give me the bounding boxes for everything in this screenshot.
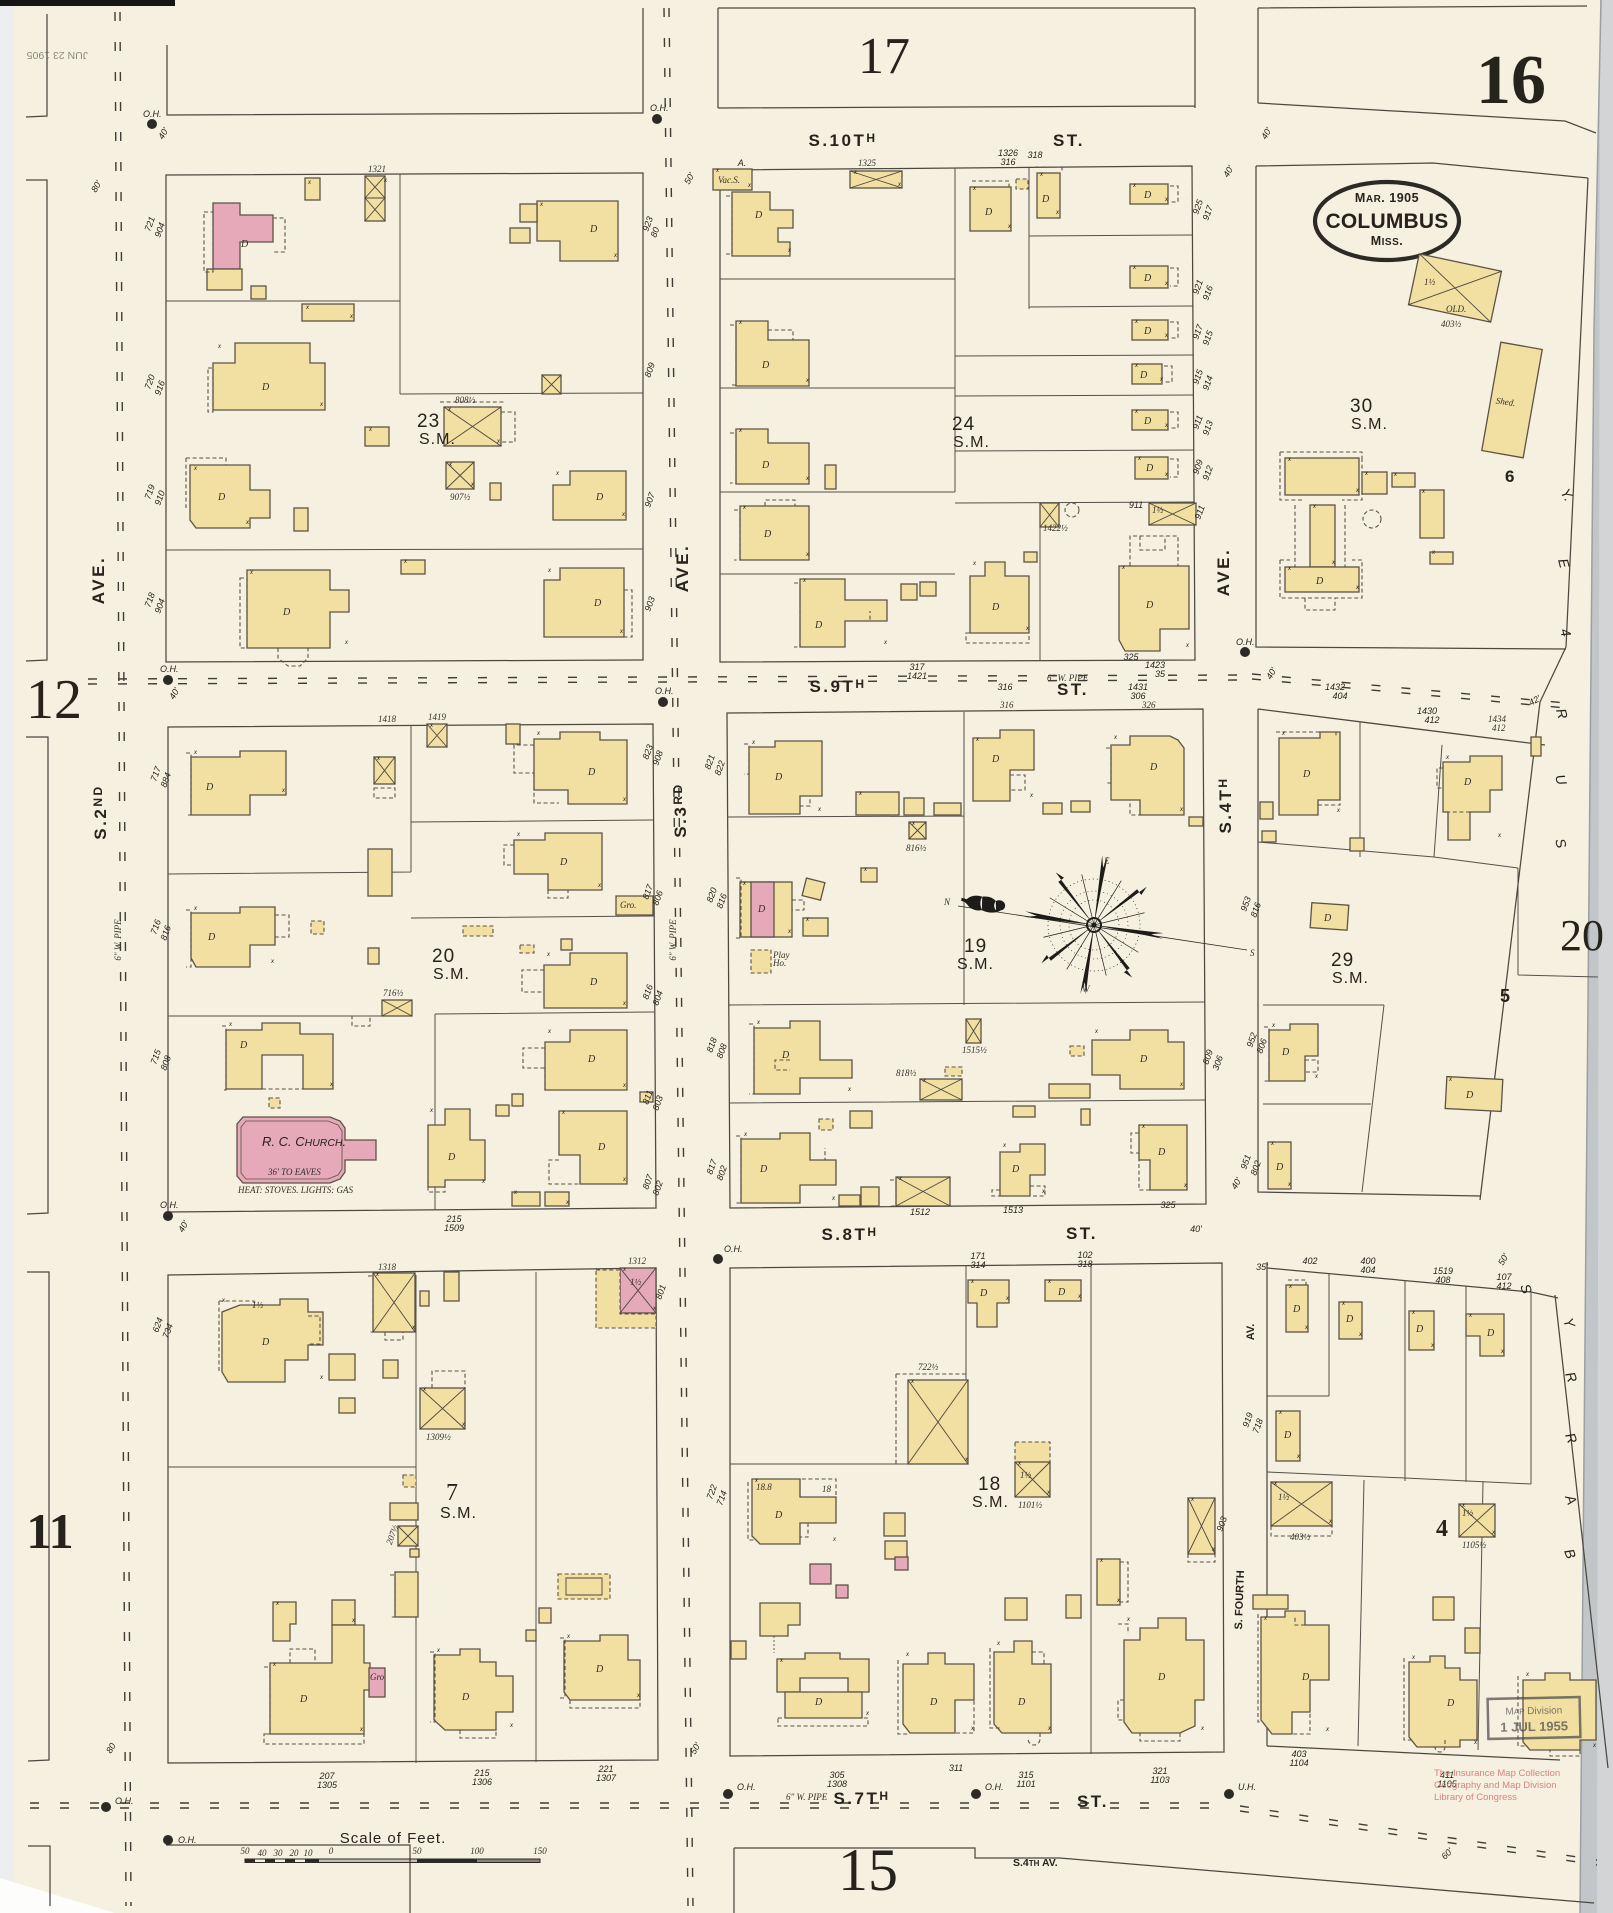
svg-text:D: D (774, 1510, 783, 1521)
svg-text:D: D (759, 1164, 768, 1175)
svg-text:O.H.: O.H. (178, 1835, 197, 1845)
svg-text:S.M.: S.M. (1351, 416, 1388, 433)
svg-text:D: D (1465, 1090, 1474, 1101)
svg-text:D: D (1011, 1164, 1020, 1175)
svg-text:D: D (814, 620, 823, 631)
svg-text:Scale of Feet.: Scale of Feet. (340, 1830, 447, 1847)
svg-text:907½: 907½ (450, 492, 471, 502)
svg-text:318: 318 (1077, 1259, 1092, 1269)
svg-text:1312: 1312 (628, 1256, 647, 1266)
svg-text:D: D (991, 602, 1000, 613)
svg-text:1515½: 1515½ (962, 1045, 987, 1055)
svg-text:1½: 1½ (1424, 277, 1436, 287)
svg-text:D: D (461, 1692, 470, 1703)
svg-text:403½: 403½ (1441, 319, 1462, 329)
svg-text:Library of Congress: Library of Congress (1434, 1792, 1517, 1803)
svg-text:D: D (991, 754, 1000, 765)
svg-text:911: 911 (1129, 500, 1143, 510)
svg-text:D: D (1143, 273, 1152, 284)
svg-text:ST.: ST. (1053, 131, 1085, 150)
svg-text:D: D (1057, 1287, 1066, 1298)
svg-text:1104: 1104 (1289, 1758, 1308, 1768)
svg-text:1306: 1306 (472, 1777, 492, 1787)
svg-text:15: 15 (838, 1837, 898, 1903)
svg-text:1325: 1325 (858, 158, 877, 168)
svg-text:Gro.: Gro. (620, 900, 636, 910)
svg-text:ST.: ST. (1066, 1224, 1098, 1243)
svg-text:20: 20 (432, 946, 455, 967)
svg-text:D: D (1486, 1328, 1495, 1339)
svg-text:18.8: 18.8 (756, 1482, 772, 1492)
svg-text:O.H.: O.H. (143, 109, 162, 119)
svg-text:6" W. PIPE: 6" W. PIPE (786, 1792, 828, 1802)
svg-text:325: 325 (1160, 1200, 1176, 1210)
svg-text:1512: 1512 (910, 1207, 930, 1217)
svg-text:20: 20 (290, 1848, 300, 1858)
svg-text:11: 11 (26, 1503, 73, 1559)
svg-text:D: D (1463, 777, 1472, 788)
svg-text:408: 408 (1435, 1275, 1450, 1285)
svg-text:S.M.: S.M. (1332, 970, 1369, 987)
svg-text:Gro: Gro (370, 1672, 385, 1682)
svg-text:AV.: AV. (1245, 1324, 1257, 1341)
svg-text:316: 316 (1000, 157, 1015, 167)
svg-text:50: 50 (241, 1846, 251, 1856)
svg-text:S. FOURTH: S. FOURTH (1233, 1570, 1247, 1630)
svg-text:D: D (1283, 1430, 1292, 1441)
svg-text:19: 19 (964, 936, 987, 957)
svg-text:D: D (1415, 1324, 1424, 1335)
svg-text:JUN 23 1905: JUN 23 1905 (27, 49, 88, 61)
svg-text:S.M.: S.M. (440, 1505, 477, 1522)
svg-text:40: 40 (258, 1848, 268, 1858)
svg-text:100: 100 (470, 1846, 484, 1856)
svg-text:412: 412 (1424, 715, 1439, 725)
svg-text:COLUMBUS: COLUMBUS (1326, 210, 1449, 233)
svg-text:D: D (1302, 769, 1311, 780)
svg-text:1½: 1½ (1278, 1492, 1290, 1502)
svg-text:D: D (589, 977, 598, 988)
svg-text:D: D (1292, 1304, 1301, 1315)
svg-text:404: 404 (1360, 1265, 1375, 1275)
svg-text:1105½: 1105½ (1462, 1540, 1486, 1550)
svg-text:D: D (447, 1152, 456, 1163)
svg-text:30: 30 (1350, 396, 1373, 417)
svg-text:10: 10 (304, 1848, 314, 1858)
svg-text:HEAT: STOVES. LIGHTS: GAS: HEAT: STOVES. LIGHTS: GAS (237, 1185, 354, 1195)
svg-text:Vac.S.: Vac.S. (718, 175, 740, 185)
svg-text:412: 412 (1492, 723, 1506, 733)
svg-text:18: 18 (978, 1474, 1001, 1495)
svg-text:S.M.: S.M. (419, 431, 456, 448)
svg-text:D: D (979, 1288, 988, 1299)
svg-text:17: 17 (858, 28, 910, 85)
svg-text:306: 306 (1130, 691, 1145, 701)
svg-text:S.M.: S.M. (957, 956, 994, 973)
svg-text:316: 316 (997, 682, 1012, 692)
svg-text:OLD.: OLD. (1446, 304, 1466, 314)
svg-text:16: 16 (1476, 42, 1546, 119)
svg-text:1418: 1418 (378, 714, 397, 724)
svg-text:O.H.: O.H. (985, 1782, 1004, 1792)
svg-text:D: D (1157, 1147, 1166, 1158)
svg-text:S.4TH AV.: S.4TH AV. (1013, 1857, 1058, 1869)
svg-text:D: D (929, 1697, 938, 1708)
svg-text:Geography and Map Division: Geography and Map Division (1434, 1780, 1557, 1791)
svg-text:1305: 1305 (317, 1780, 338, 1790)
svg-text:D: D (1139, 1054, 1148, 1065)
svg-text:326: 326 (1141, 700, 1156, 710)
svg-text:7: 7 (446, 1480, 458, 1506)
svg-text:6" W. PIPE: 6" W. PIPE (113, 919, 123, 961)
svg-text:35: 35 (1155, 669, 1166, 679)
svg-text:12: 12 (26, 669, 82, 731)
svg-text:D: D (761, 460, 770, 471)
svg-text:D: D (1145, 600, 1154, 611)
svg-text:816½: 816½ (906, 843, 927, 853)
svg-text:D: D (984, 207, 993, 218)
svg-text:716½: 716½ (383, 988, 404, 998)
svg-text:1321: 1321 (368, 164, 386, 174)
svg-text:D: D (757, 904, 766, 915)
svg-text:D: D (1041, 194, 1050, 205)
svg-text:D: D (587, 1054, 596, 1065)
svg-text:1509: 1509 (444, 1223, 464, 1233)
svg-text:D: D (1281, 1047, 1290, 1058)
svg-text:1103: 1103 (1150, 1775, 1169, 1785)
svg-text:O.H.: O.H. (160, 664, 179, 674)
svg-text:1½: 1½ (1020, 1470, 1032, 1480)
svg-text:D: D (597, 1142, 606, 1153)
svg-text:1422½: 1422½ (1043, 523, 1068, 533)
svg-text:D: D (217, 492, 226, 503)
svg-text:4: 4 (1436, 1516, 1448, 1542)
svg-text:412: 412 (1496, 1281, 1511, 1291)
svg-text:20: 20 (1560, 911, 1604, 960)
svg-text:R. C. CHURCH.: R. C. CHURCH. (262, 1134, 346, 1149)
svg-text:6" W. PIPE: 6" W. PIPE (668, 919, 678, 961)
svg-text:18: 18 (822, 1484, 832, 1494)
svg-text:The Insurance Map Collection: The Insurance Map Collection (1434, 1768, 1560, 1779)
svg-text:D: D (774, 772, 783, 783)
svg-text:D: D (754, 210, 763, 221)
svg-text:314: 314 (970, 1260, 985, 1270)
svg-text:1 JUL 1955: 1 JUL 1955 (1500, 1718, 1568, 1734)
svg-text:D: D (1157, 1672, 1166, 1683)
svg-text:U.H.: U.H. (1238, 1782, 1256, 1792)
svg-text:0: 0 (329, 1846, 334, 1856)
svg-text:Ho.: Ho. (772, 958, 786, 968)
svg-text:MISS.: MISS. (1371, 234, 1404, 248)
svg-text:1419: 1419 (428, 712, 447, 722)
svg-text:E: E (1103, 856, 1110, 866)
svg-text:MAP Division: MAP Division (1505, 1705, 1562, 1717)
svg-text:402: 402 (1302, 1256, 1317, 1266)
svg-text:1½: 1½ (630, 1277, 642, 1287)
svg-text:1½: 1½ (1152, 505, 1164, 515)
svg-text:1½: 1½ (1462, 1508, 1474, 1518)
svg-text:D: D (261, 1337, 270, 1348)
svg-text:O.H.: O.H. (650, 103, 669, 113)
svg-text:D: D (1323, 913, 1332, 924)
svg-text:S.M.: S.M. (953, 434, 990, 451)
svg-text:722½: 722½ (918, 1362, 939, 1372)
svg-text:D: D (595, 1664, 604, 1675)
svg-text:D: D (761, 360, 770, 371)
svg-text:D: D (1275, 1162, 1284, 1173)
svg-text:AVE.: AVE. (673, 544, 692, 592)
svg-text:A.: A. (737, 158, 747, 168)
svg-text:1421: 1421 (907, 671, 927, 681)
svg-text:D: D (595, 492, 604, 503)
svg-text:150: 150 (533, 1846, 547, 1856)
svg-text:311: 311 (949, 1763, 963, 1773)
svg-text:D: D (239, 1040, 248, 1051)
svg-text:D: D (814, 1697, 823, 1708)
svg-text:O.H.: O.H. (160, 1200, 179, 1210)
svg-text:D: D (587, 767, 596, 778)
svg-text:AVE.: AVE. (1214, 548, 1233, 596)
svg-text:O.H.: O.H. (1236, 637, 1255, 647)
svg-text:D: D (240, 239, 249, 250)
svg-text:ST.: ST. (1077, 1792, 1109, 1811)
svg-text:D: D (261, 382, 270, 393)
svg-text:318: 318 (1027, 150, 1042, 160)
svg-text:29: 29 (1331, 950, 1354, 971)
svg-text:24: 24 (952, 414, 975, 435)
svg-text:D: D (1017, 1697, 1026, 1708)
svg-text:AVE.: AVE. (89, 556, 108, 604)
svg-text:S.M.: S.M. (972, 1494, 1009, 1511)
svg-text:D: D (559, 857, 568, 868)
svg-text:50: 50 (413, 1846, 423, 1856)
svg-text:1318: 1318 (378, 1262, 397, 1272)
svg-text:23: 23 (417, 411, 440, 432)
svg-text:D: D (1149, 762, 1158, 773)
svg-text:403½: 403½ (1290, 1532, 1311, 1542)
svg-text:1308: 1308 (827, 1779, 847, 1789)
svg-text:D: D (207, 932, 216, 943)
svg-text:808½: 808½ (455, 395, 476, 405)
svg-text:O.H.: O.H. (655, 686, 674, 696)
svg-text:O.H.: O.H. (737, 1782, 756, 1792)
svg-text:40': 40' (1190, 1224, 1202, 1234)
svg-text:818½: 818½ (896, 1068, 917, 1078)
svg-text:325: 325 (1123, 652, 1139, 662)
svg-text:6" W. PIPE: 6" W. PIPE (1047, 673, 1089, 683)
svg-text:D: D (205, 782, 214, 793)
svg-text:D: D (1143, 416, 1152, 427)
svg-text:30: 30 (273, 1848, 284, 1858)
svg-text:D: D (1143, 190, 1152, 201)
svg-text:MAR. 1905: MAR. 1905 (1355, 191, 1419, 205)
svg-text:D: D (781, 1050, 790, 1061)
svg-text:O.H.: O.H. (724, 1244, 743, 1254)
svg-text:1309½: 1309½ (426, 1432, 451, 1442)
svg-text:D: D (1315, 576, 1324, 587)
svg-text:5: 5 (1500, 986, 1510, 1006)
svg-text:D: D (1139, 370, 1148, 381)
svg-text:S.M.: S.M. (433, 966, 470, 983)
svg-text:D: D (282, 607, 291, 618)
svg-text:6: 6 (1505, 467, 1514, 486)
svg-text:D: D (1145, 463, 1154, 474)
svg-text:D: D (593, 598, 602, 609)
svg-text:1½: 1½ (252, 1300, 264, 1310)
svg-text:1307: 1307 (596, 1773, 617, 1783)
svg-text:D: D (1446, 1698, 1455, 1709)
svg-text:1513: 1513 (1003, 1205, 1023, 1215)
svg-text:36' TO EAVES: 36' TO EAVES (267, 1167, 321, 1177)
svg-text:D: D (1143, 326, 1152, 337)
svg-text:S: S (1250, 948, 1255, 958)
svg-text:D: D (1301, 1672, 1310, 1683)
svg-text:D: D (589, 224, 598, 235)
svg-text:D: D (1345, 1314, 1354, 1325)
svg-text:1101½: 1101½ (1018, 1500, 1042, 1510)
svg-text:35': 35' (1256, 1262, 1268, 1272)
svg-text:1101: 1101 (1016, 1779, 1035, 1789)
svg-text:O.H.: O.H. (115, 1796, 134, 1806)
svg-text:D: D (299, 1694, 308, 1705)
svg-text:D: D (763, 529, 772, 540)
svg-text:N: N (943, 897, 951, 907)
svg-text:316: 316 (999, 700, 1014, 710)
svg-text:404: 404 (1332, 691, 1347, 701)
